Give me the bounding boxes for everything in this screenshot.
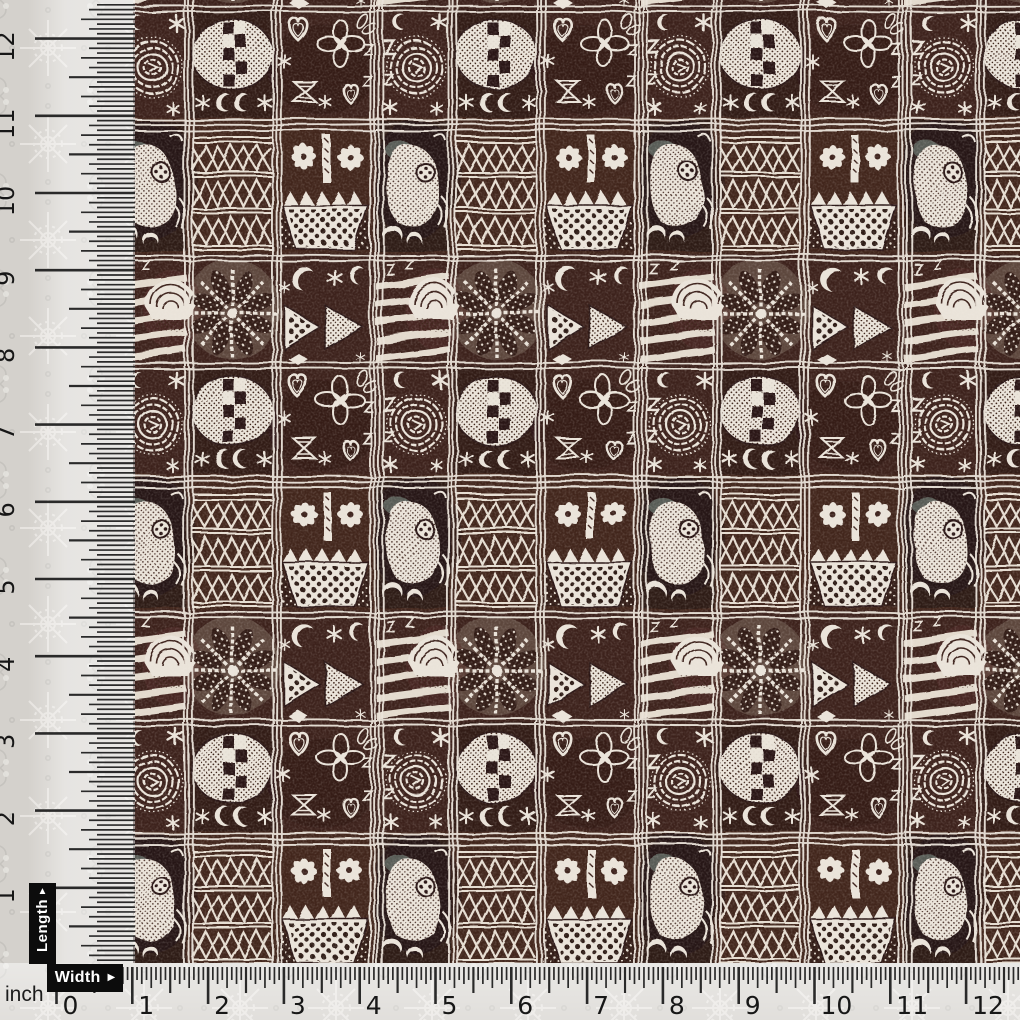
length-label: ▲ Length	[29, 883, 56, 964]
ruler-number: 10	[821, 991, 853, 1020]
ruler-number: 1	[138, 991, 154, 1020]
ruler-number: 9	[745, 991, 761, 1020]
ruler-number: 1	[0, 888, 20, 903]
ruler-number: 8	[0, 348, 20, 363]
horizontal-ruler: 0123456789101112	[0, 963, 1020, 1020]
unit-label: inch	[5, 983, 44, 1007]
ruler-number: 12	[0, 31, 20, 62]
ruler-number: 5	[0, 579, 20, 594]
ruler-number: 12	[972, 991, 1004, 1020]
width-label-text: Width	[55, 969, 101, 987]
ruler-number: 0	[63, 991, 79, 1020]
ruler-number: 7	[593, 991, 609, 1020]
ruler-number: 4	[366, 991, 382, 1020]
ruler-number: 5	[442, 991, 458, 1020]
vertical-ruler: 0123456789101112	[0, 0, 135, 963]
ruler-number: 11	[896, 991, 928, 1020]
ruler-number: 3	[0, 734, 20, 749]
printed-fabric-swatch	[133, 0, 1020, 963]
ruler-number: 6	[0, 502, 20, 517]
ruler-number: 9	[0, 271, 20, 286]
ruler-number: 10	[0, 186, 20, 217]
fabric-product-photo: 0123456789101112 0123456789101112 ▲ Leng…	[0, 0, 1020, 1020]
ruler-number: 8	[669, 991, 685, 1020]
length-label-text: Length	[34, 899, 51, 952]
ruler-number: 11	[0, 109, 20, 140]
ruler-number: 2	[0, 811, 20, 826]
width-label: Width ▶	[47, 964, 123, 992]
right-arrow-icon: ▶	[108, 973, 116, 983]
ruler-number: 2	[214, 991, 230, 1020]
ruler-number: 3	[290, 991, 306, 1020]
vertical-ruler-numbers: 0123456789101112	[0, 31, 20, 963]
ruler-number: 4	[0, 657, 20, 672]
up-arrow-icon: ▲	[38, 887, 48, 897]
ruler-number: 6	[517, 991, 533, 1020]
ruler-number: 7	[0, 425, 20, 440]
